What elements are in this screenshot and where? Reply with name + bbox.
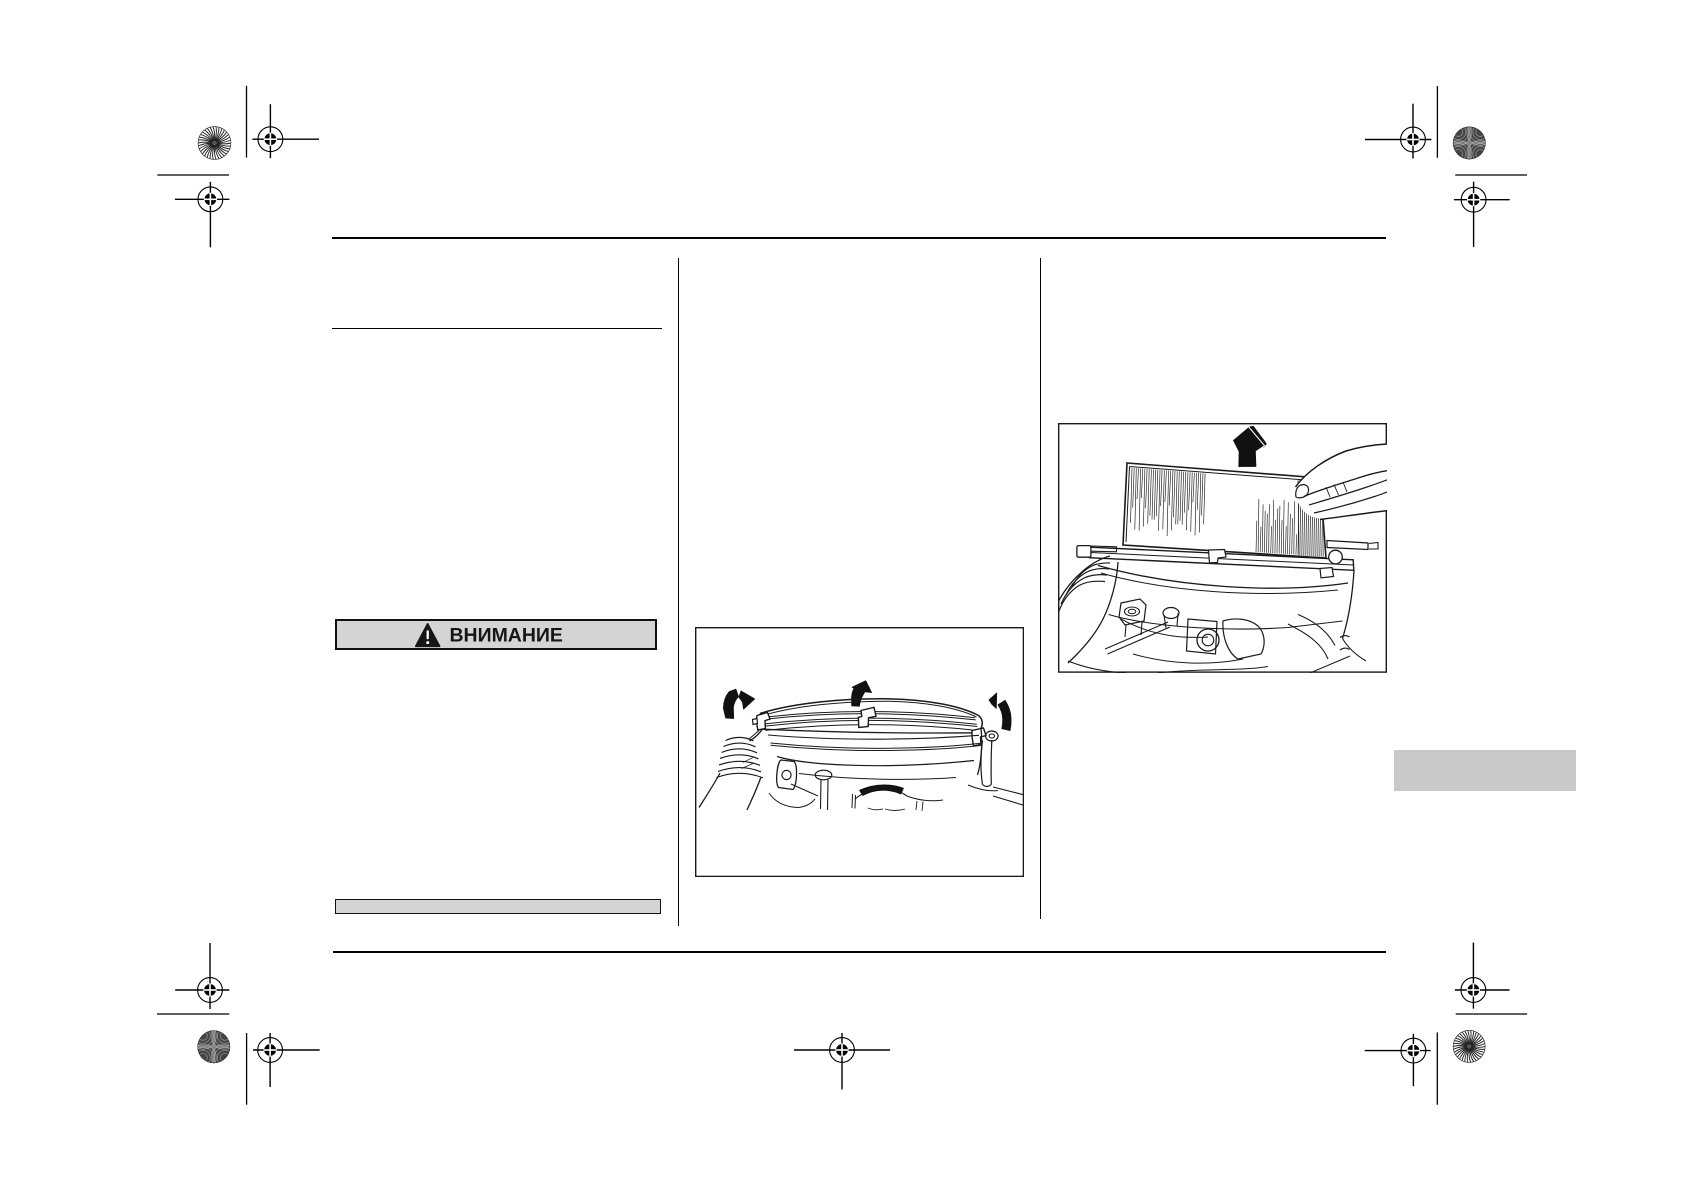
svg-text:ВНИМАНИЕ: ВНИМАНИЕ: [450, 625, 563, 646]
